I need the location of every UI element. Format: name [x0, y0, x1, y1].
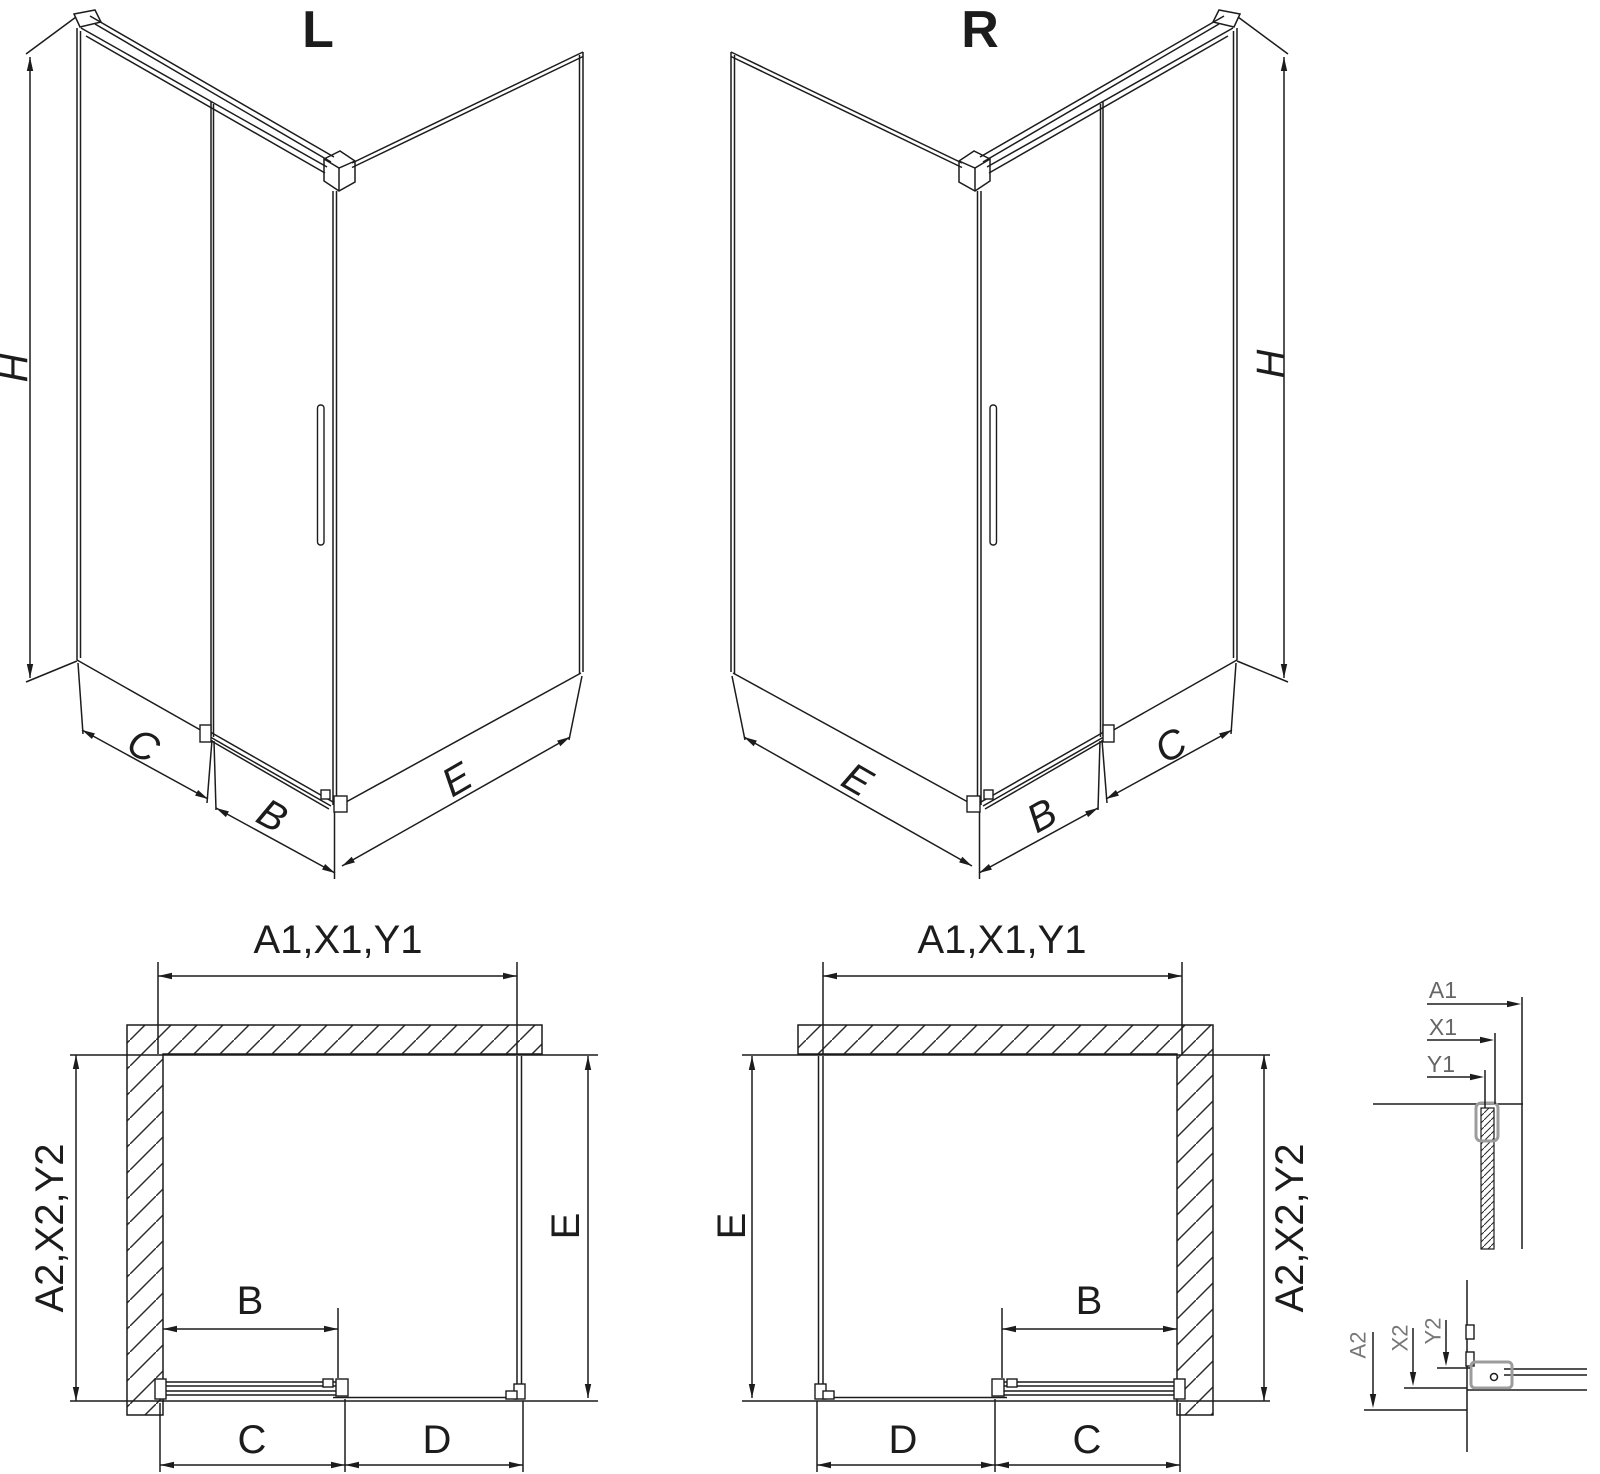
- detail-y2-label: Y2: [1421, 1318, 1446, 1345]
- plan-right-b-label: B: [1076, 1279, 1103, 1323]
- iso-view-right: R H E B C: [731, 1, 1293, 879]
- glass-panel-section: [1481, 1108, 1494, 1249]
- wall-hatch-right-plan: [798, 1025, 1213, 1415]
- plan-right-depth-label: A2,X2,Y2: [1268, 1143, 1312, 1312]
- plan-right-width-label: A1,X1,Y1: [917, 918, 1086, 962]
- plan-right-c-label: C: [1073, 1418, 1102, 1462]
- door-profile-section: [1470, 1313, 1504, 1388]
- dim-label-side-left: C: [120, 720, 168, 773]
- plan-left-d-label: D: [423, 1418, 452, 1462]
- wall-hatch-left-plan: [127, 1025, 542, 1415]
- detail-a1-label: A1: [1429, 977, 1457, 1003]
- variant-label-right: R: [961, 1, 999, 59]
- plan-right-e-label: E: [710, 1213, 754, 1240]
- detail-x1-label: X1: [1429, 1014, 1457, 1040]
- plan-left-width-label: A1,X1,Y1: [253, 918, 422, 962]
- iso-view-left: L H C B E: [0, 1, 583, 879]
- dim-label-fixed-left: E: [434, 754, 480, 806]
- plan-right-d-label: D: [889, 1418, 918, 1462]
- dim-label-door-right: B: [1020, 790, 1065, 841]
- variant-label-left: L: [302, 1, 334, 59]
- drawing-canvas: L H C B E R H E B C A1,X1,Y1 A2,X2,Y2 E …: [0, 0, 1600, 1474]
- dim-label-height-left: H: [0, 353, 36, 382]
- dim-label-door-left: B: [250, 790, 295, 841]
- detail-a2-label: A2: [1346, 1332, 1371, 1359]
- detail-x2-label: X2: [1388, 1325, 1413, 1352]
- plan-left-e-label: E: [544, 1213, 588, 1240]
- detail-bottom-measurement-box: A2 X2 Y2: [1337, 1280, 1589, 1452]
- plan-left-c-label: C: [238, 1418, 267, 1462]
- detail-y1-label: Y1: [1427, 1051, 1455, 1077]
- dim-label-fixed-right: E: [834, 754, 880, 806]
- plan-left-depth-label: A2,X2,Y2: [28, 1143, 72, 1312]
- dim-label-side-right: C: [1148, 719, 1196, 772]
- detail-top-measurement-box: A1 X1 Y1: [1373, 968, 1546, 1249]
- plan-left-b-label: B: [237, 1279, 264, 1323]
- technical-drawing-page: L H C B E R H E B C A1,X1,Y1 A2,X2,Y2 E …: [0, 0, 1600, 1474]
- plan-view-left: A1,X1,Y1 A2,X2,Y2 E B C D: [28, 918, 598, 1472]
- dim-label-height-right: H: [1249, 349, 1293, 378]
- plan-view-right: A1,X1,Y1 A2,X2,Y2 E B D C: [710, 918, 1312, 1472]
